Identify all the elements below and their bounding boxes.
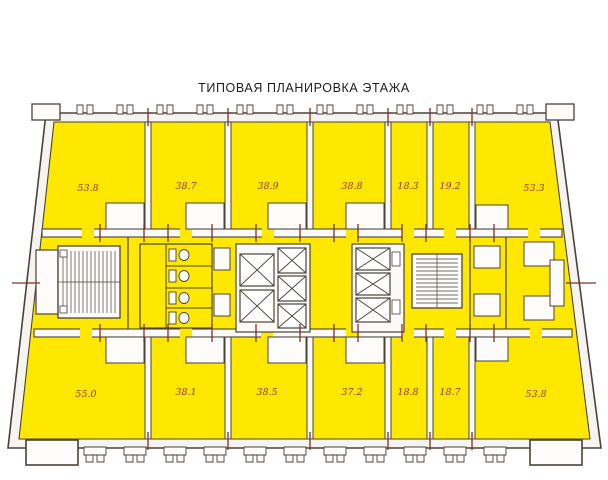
room-area-label: 18.8 (397, 387, 418, 398)
corridor-wall-top (42, 229, 562, 237)
corner-block-bottom-right (530, 440, 582, 465)
room-area-label: 55.0 (75, 389, 96, 400)
elevator-bank-right (352, 244, 404, 332)
room-area-label: 38.8 (341, 181, 362, 192)
room-area-label: 38.1 (175, 387, 196, 398)
corner-block-top-right (546, 104, 574, 120)
stairwell-right (412, 254, 462, 308)
corner-block-top-left (32, 104, 60, 120)
room-area-label: 19.2 (439, 181, 460, 192)
corner-block-bottom-left (26, 440, 78, 465)
room-area-label: 18.7 (439, 387, 461, 398)
room-area-label: 53.8 (525, 389, 546, 400)
facade-bays-bottom (84, 447, 506, 462)
room-area-label: 53.8 (77, 183, 98, 194)
room-area-label: 37.2 (341, 387, 362, 398)
room-area-label: 18.3 (397, 181, 418, 192)
room-area-label: 38.7 (175, 181, 197, 192)
stairwell-left (36, 246, 120, 318)
floor-plan-drawing: 53.8 38.7 38.9 38.8 18.3 19.2 53.3 55.0 … (0, 0, 608, 480)
stair-lobby-left (36, 250, 58, 314)
room-area-label: 38.9 (257, 181, 278, 192)
elevator-bank-left (236, 244, 310, 332)
room-area-label: 38.5 (256, 387, 277, 398)
room-area-label: 53.3 (523, 183, 544, 194)
floor-plan-page: ТИПОВАЯ ПЛАНИРОВКА ЭТАЖА (0, 0, 608, 480)
